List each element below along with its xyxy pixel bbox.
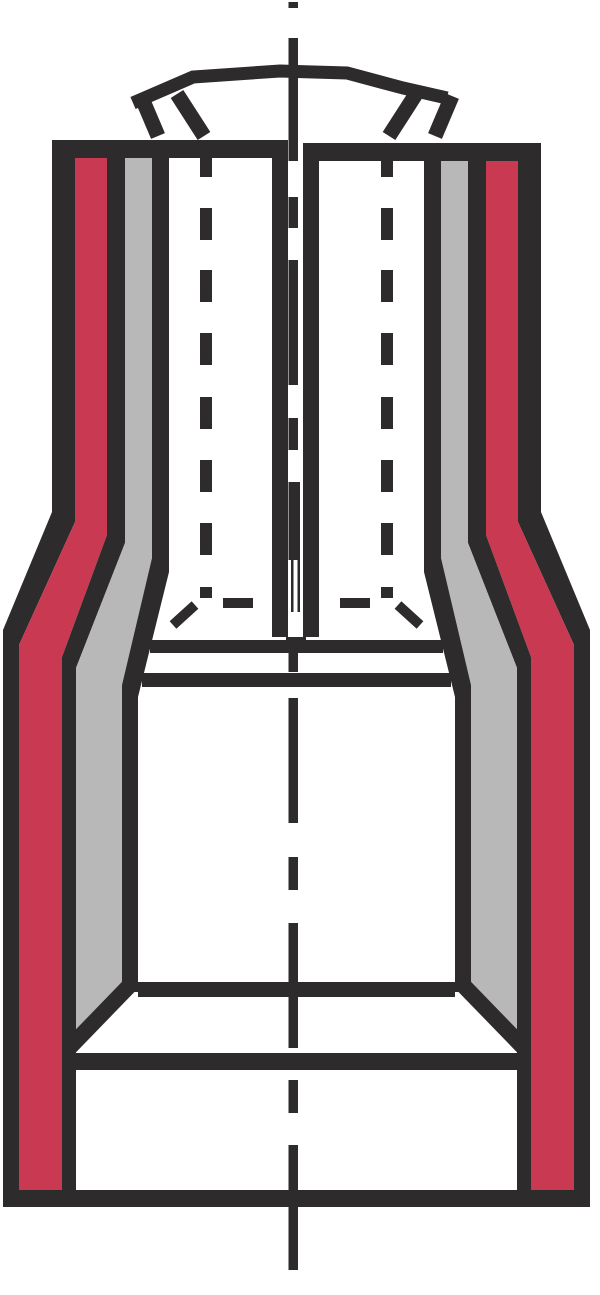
terminal-cross-section-figure — [0, 0, 600, 1295]
centerline-dash — [289, 197, 299, 228]
centerline-dash — [289, 2, 299, 8]
centerline-dash — [289, 418, 299, 450]
centerline-dash — [289, 857, 299, 890]
centerline-dash — [289, 652, 299, 672]
centerline-dash — [289, 482, 299, 560]
receptacle-bottom-edge — [150, 640, 443, 653]
centerline-dash — [289, 260, 299, 385]
centerline-dash — [289, 698, 299, 823]
body-top-edge-left — [52, 140, 286, 158]
contact-leaf-left — [272, 140, 288, 637]
body-top-edge-right — [306, 143, 541, 161]
terminal-cross-section-diagram — [0, 0, 600, 1295]
centerline-dash — [289, 923, 299, 1048]
centerline-dash — [289, 1145, 299, 1270]
centerline-dash — [289, 1080, 299, 1113]
sleeve-bottom-edge — [62, 1053, 531, 1070]
contact-leaf-right — [303, 143, 319, 637]
wire-barrel-top-edge — [142, 673, 451, 687]
centerline-dash — [289, 38, 299, 161]
